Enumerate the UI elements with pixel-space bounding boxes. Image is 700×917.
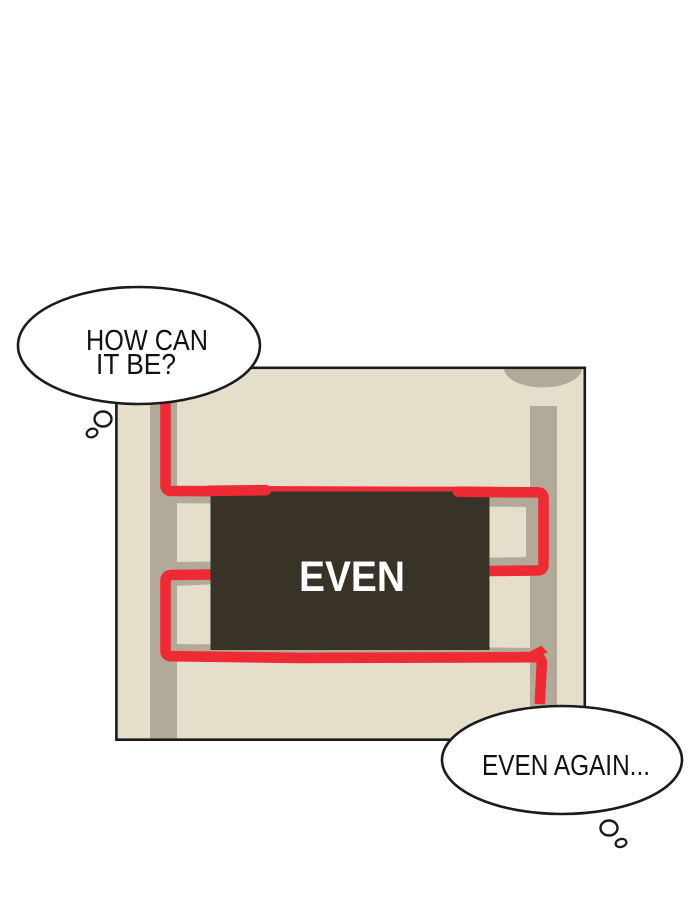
svg-text:EVEN: EVEN [299, 553, 405, 601]
svg-text:EVEN AGAIN...: EVEN AGAIN... [482, 750, 650, 782]
svg-text:IT BE?: IT BE? [96, 349, 176, 381]
